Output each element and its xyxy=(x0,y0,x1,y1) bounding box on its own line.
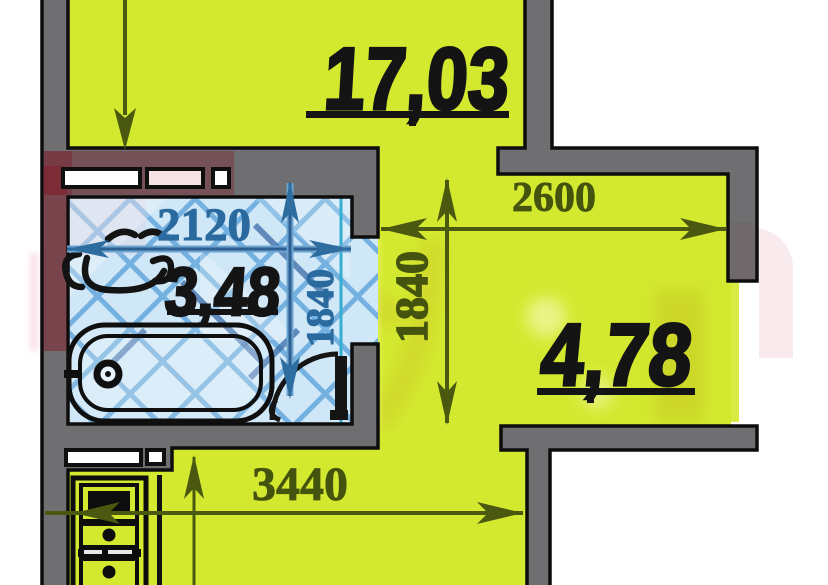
svg-text:3440: 3440 xyxy=(252,458,348,511)
svg-text:1840: 1840 xyxy=(386,251,437,343)
svg-text:2600: 2600 xyxy=(512,175,596,221)
svg-text:1840: 1840 xyxy=(299,269,342,347)
svg-text:3,48: 3,48 xyxy=(162,253,283,330)
svg-text:2120: 2120 xyxy=(157,199,251,251)
